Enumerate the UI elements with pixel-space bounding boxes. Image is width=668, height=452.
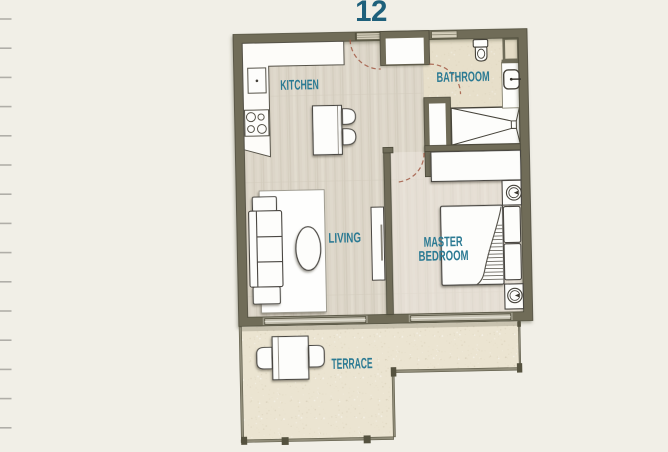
svg-text:TERRACE: TERRACE (331, 355, 372, 373)
svg-text:KITCHEN: KITCHEN (280, 76, 319, 93)
svg-text:12: 12 (355, 0, 387, 28)
svg-text:BEDROOM: BEDROOM (418, 247, 468, 264)
svg-text:BATHROOM: BATHROOM (436, 68, 489, 85)
svg-text:LIVING: LIVING (328, 229, 361, 246)
